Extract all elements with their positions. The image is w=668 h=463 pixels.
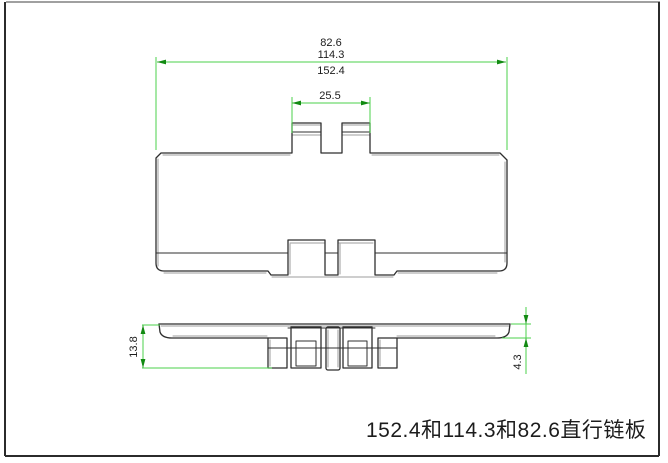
drawing-title: 152.4和114.3和82.6直行链板 xyxy=(366,419,646,442)
dim-label-25-5: 25.5 xyxy=(319,90,340,102)
arrow-left-icon xyxy=(292,101,301,106)
dim-label-114-3: 114.3 xyxy=(318,49,345,61)
dim-label-13-8: 13.8 xyxy=(128,336,140,357)
knuckle-2-inner xyxy=(296,341,316,366)
knuckle-4-inner xyxy=(348,341,367,366)
arrow-down-icon xyxy=(141,359,146,368)
top-view xyxy=(156,123,507,277)
technical-drawing: 82.6 114.3 152.4 25.5 13.8 xyxy=(0,0,668,463)
arrow-left-icon xyxy=(157,60,166,65)
dimension-tab-span: 25.5 xyxy=(292,90,370,133)
dimension-plate-thickness: 4.3 xyxy=(502,307,531,374)
dim-label-152-4: 152.4 xyxy=(317,65,345,77)
arrow-up-icon xyxy=(141,325,146,334)
arrow-up-icon xyxy=(524,338,529,347)
dim-label-4-3: 4.3 xyxy=(512,354,524,369)
arrow-right-icon xyxy=(361,101,370,106)
drawing-page: 82.6 114.3 152.4 25.5 13.8 xyxy=(0,0,668,463)
dim-label-82-6: 82.6 xyxy=(320,37,341,49)
top-view-outline xyxy=(156,123,507,275)
knuckle-1 xyxy=(268,338,287,368)
side-view xyxy=(159,324,510,370)
dimension-side-height: 13.8 xyxy=(128,325,272,368)
knuckle-5 xyxy=(378,338,397,368)
arrow-down-icon xyxy=(524,315,529,324)
arrow-right-icon xyxy=(497,60,506,65)
